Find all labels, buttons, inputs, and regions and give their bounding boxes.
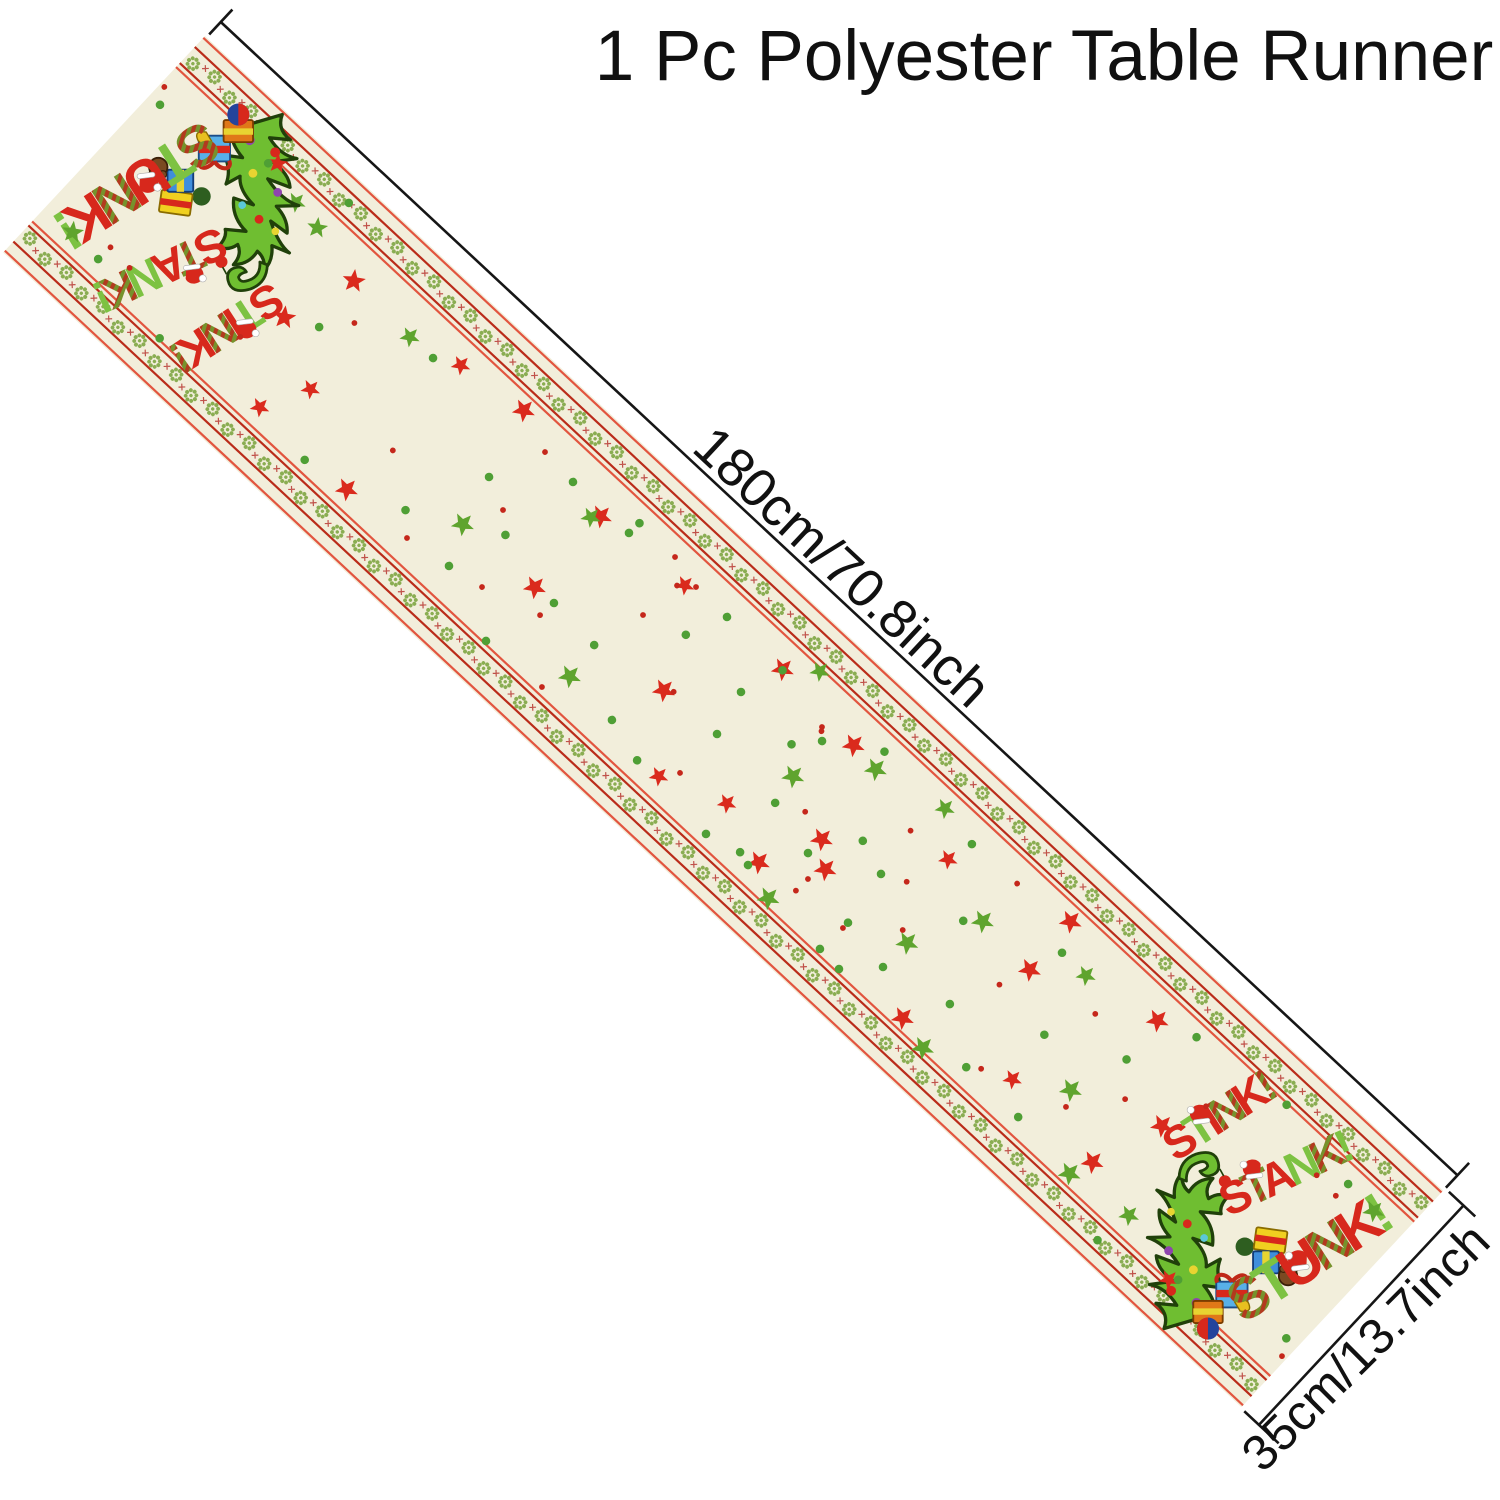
svg-text:1 Pc Polyester Table Runner: 1 Pc Polyester Table Runner: [595, 17, 1494, 96]
